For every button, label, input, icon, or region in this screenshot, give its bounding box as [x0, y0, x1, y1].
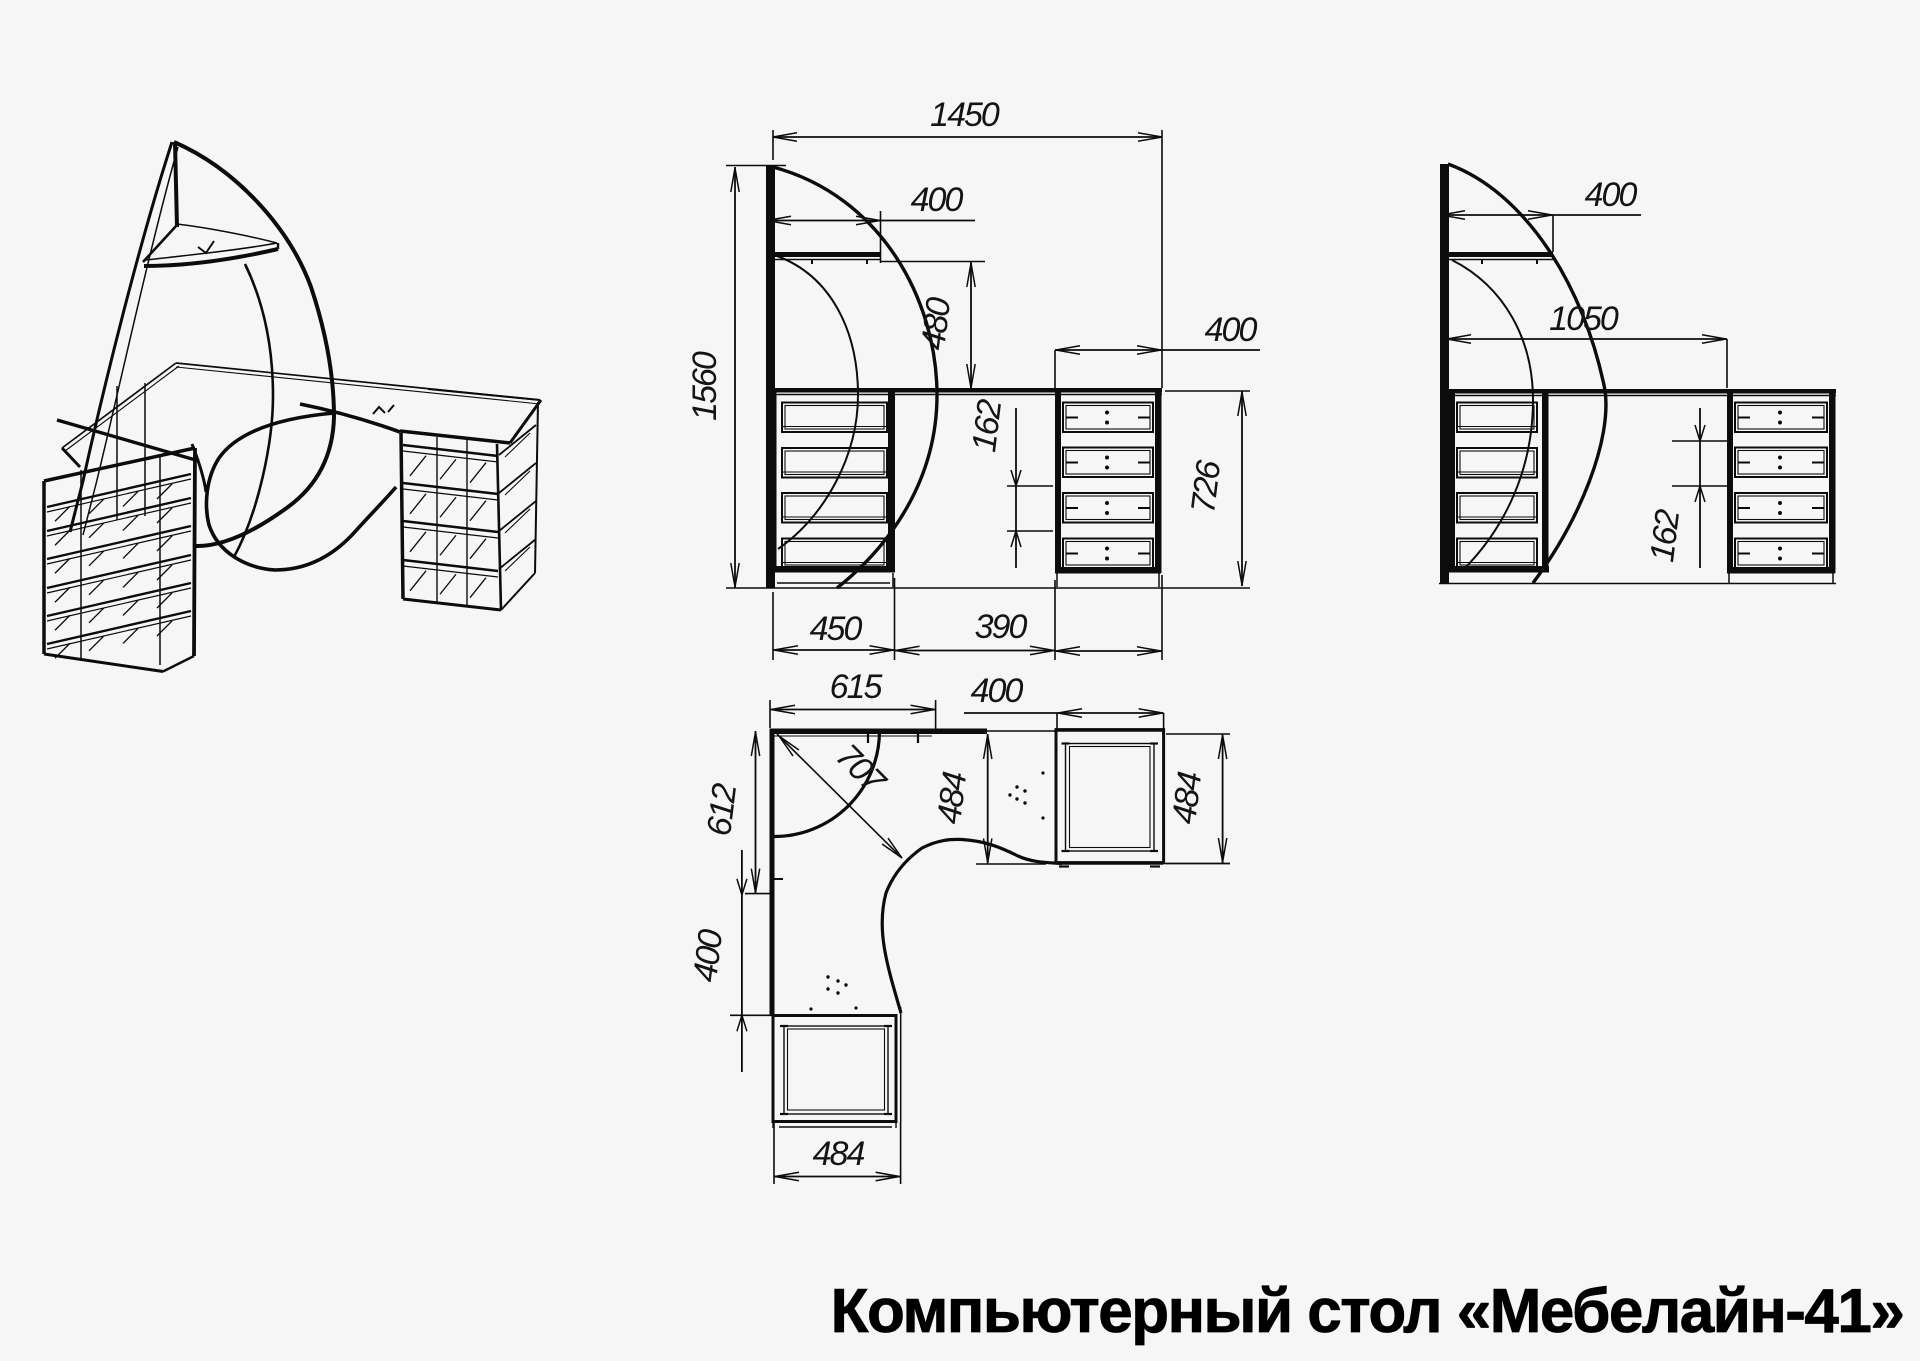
svg-text:400: 400 — [971, 672, 1024, 710]
svg-text:480: 480 — [914, 295, 958, 352]
svg-text:615: 615 — [830, 668, 883, 706]
svg-text:390: 390 — [975, 608, 1028, 646]
svg-text:450: 450 — [810, 610, 863, 648]
svg-text:484: 484 — [930, 770, 974, 826]
svg-text:484: 484 — [813, 1135, 865, 1173]
svg-text:162: 162 — [1643, 507, 1687, 564]
svg-text:726: 726 — [1184, 458, 1228, 515]
svg-text:400: 400 — [911, 181, 964, 219]
svg-text:707: 707 — [828, 737, 893, 802]
svg-text:1050: 1050 — [1549, 300, 1619, 338]
svg-text:Компьютерный стол «Мебелайн-41: Компьютерный стол «Мебелайн-41» — [831, 1277, 1904, 1346]
svg-text:400: 400 — [1205, 311, 1258, 349]
svg-text:400: 400 — [686, 927, 730, 984]
svg-text:1560: 1560 — [686, 351, 724, 421]
svg-text:162: 162 — [965, 397, 1009, 454]
svg-text:400: 400 — [1585, 176, 1638, 214]
svg-text:484: 484 — [1165, 770, 1209, 826]
svg-text:1450: 1450 — [930, 96, 1000, 134]
svg-text:612: 612 — [700, 781, 744, 838]
